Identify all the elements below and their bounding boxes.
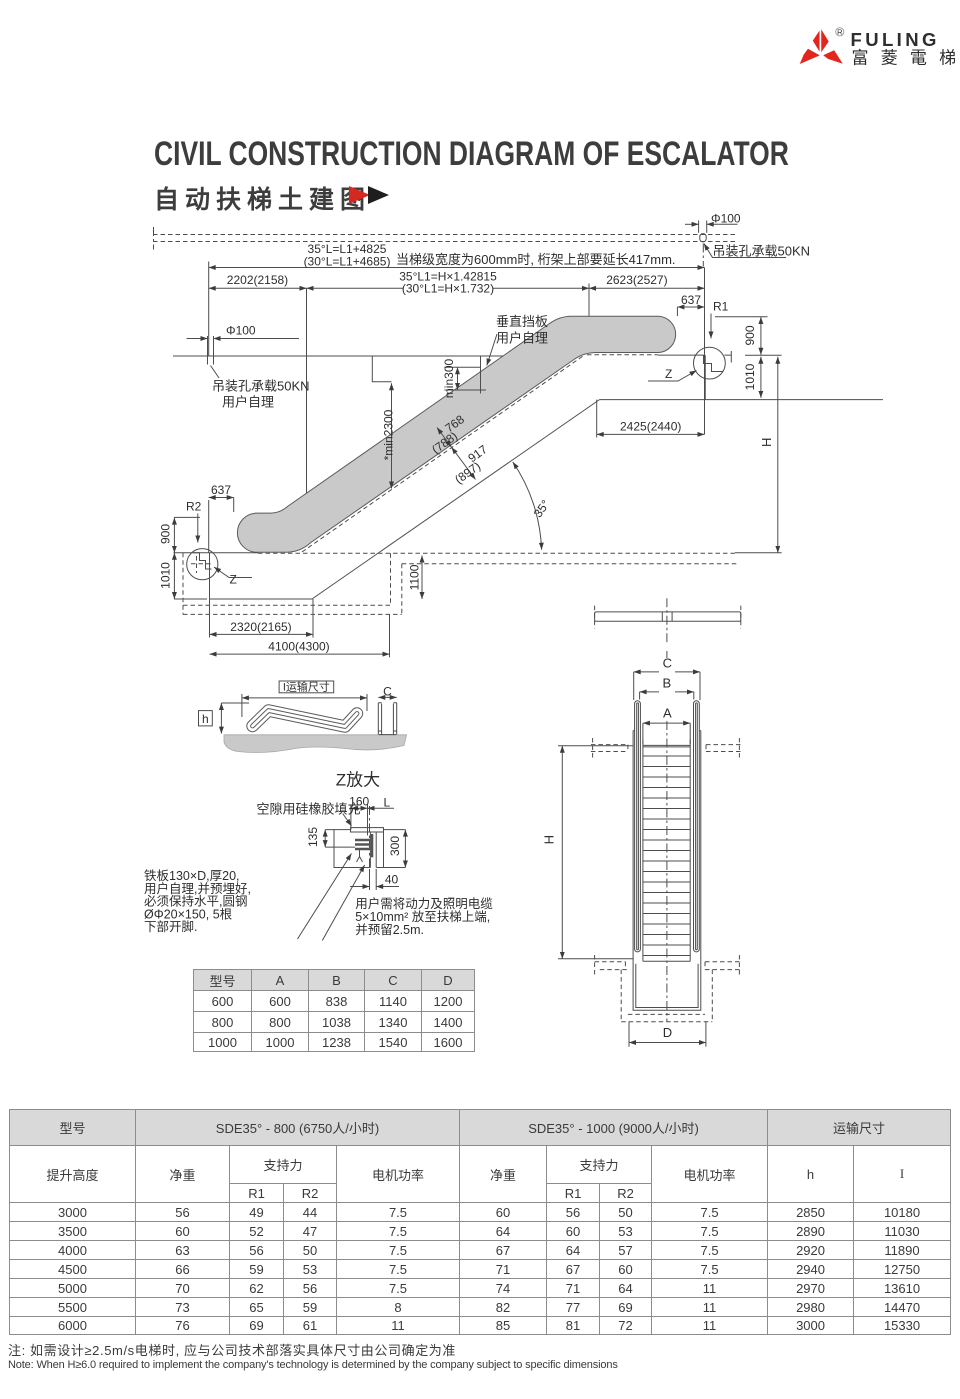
- svg-text:H: H: [759, 438, 774, 447]
- svg-text:1010: 1010: [159, 562, 173, 589]
- svg-text:R1: R1: [713, 300, 729, 314]
- svg-text:空隙用硅橡胶填充: 空隙用硅橡胶填充: [257, 802, 361, 817]
- svg-text:C: C: [383, 684, 392, 698]
- svg-text:用户需将动力及照明电缆: 用户需将动力及照明电缆: [355, 896, 493, 911]
- svg-text:Z: Z: [230, 573, 237, 587]
- svg-text:B: B: [662, 676, 671, 691]
- svg-text:2623(2527): 2623(2527): [606, 273, 667, 287]
- svg-text:FULING: FULING: [851, 29, 940, 50]
- svg-text:35°: 35°: [531, 497, 553, 520]
- svg-text:Φ100: Φ100: [711, 211, 741, 225]
- svg-text:637: 637: [681, 293, 701, 307]
- svg-text:40: 40: [385, 873, 399, 887]
- svg-text:(30°L1=H×1.732): (30°L1=H×1.732): [402, 282, 494, 296]
- svg-text:1100: 1100: [408, 564, 422, 590]
- svg-text:(30°L=L1+4685): (30°L=L1+4685): [304, 255, 391, 269]
- svg-text:吊装孔承载50KN: 吊装孔承载50KN: [713, 244, 811, 259]
- svg-text:min300: min300: [442, 358, 456, 398]
- svg-text:Φ100: Φ100: [226, 324, 256, 338]
- svg-text:L: L: [384, 796, 391, 810]
- svg-text:并预留2.5m.: 并预留2.5m.: [355, 923, 424, 937]
- svg-text:Z放大: Z放大: [336, 771, 380, 790]
- svg-text:h: h: [202, 712, 209, 726]
- svg-text:R2: R2: [186, 500, 202, 514]
- svg-text:300: 300: [388, 836, 402, 856]
- svg-text:900: 900: [159, 524, 173, 544]
- svg-text:4100(4300): 4100(4300): [268, 640, 329, 654]
- svg-text:D: D: [663, 1025, 672, 1040]
- svg-text:2320(2165): 2320(2165): [230, 620, 291, 634]
- svg-text:必须保持水平,圆钢: 必须保持水平,圆钢: [144, 894, 247, 909]
- svg-text:吊装孔承载50KN: 吊装孔承载50KN: [212, 379, 310, 394]
- svg-text:5×10mm² 放至扶梯上端,: 5×10mm² 放至扶梯上端,: [355, 909, 490, 924]
- svg-text:637: 637: [211, 483, 231, 497]
- svg-text:用户自理: 用户自理: [496, 331, 548, 346]
- svg-text:R: R: [837, 28, 843, 37]
- svg-text:2425(2440): 2425(2440): [620, 419, 681, 433]
- svg-text:下部开脚.: 下部开脚.: [144, 919, 197, 934]
- svg-text:用户自理,并预埋好,: 用户自理,并预埋好,: [144, 881, 251, 896]
- svg-text:垂直挡板: 垂直挡板: [496, 314, 548, 329]
- svg-text:当梯级宽度为600mm时, 桁架上部要延长417mm.: 当梯级宽度为600mm时, 桁架上部要延长417mm.: [396, 252, 676, 267]
- svg-text:C: C: [663, 656, 672, 671]
- svg-text:Z: Z: [665, 367, 672, 381]
- svg-text:H: H: [542, 835, 557, 844]
- svg-text:900: 900: [743, 325, 757, 345]
- svg-text:I运输尺寸: I运输尺寸: [283, 680, 330, 694]
- svg-text:A: A: [663, 706, 672, 721]
- svg-text:(897): (897): [452, 459, 483, 487]
- svg-text:用户自理: 用户自理: [222, 395, 274, 410]
- svg-text:*min2300: *min2300: [382, 409, 396, 460]
- svg-text:2202(2158): 2202(2158): [227, 273, 288, 287]
- svg-text:135: 135: [306, 827, 320, 847]
- svg-text:富菱電梯: 富菱電梯: [852, 49, 956, 68]
- svg-text:1010: 1010: [743, 363, 757, 390]
